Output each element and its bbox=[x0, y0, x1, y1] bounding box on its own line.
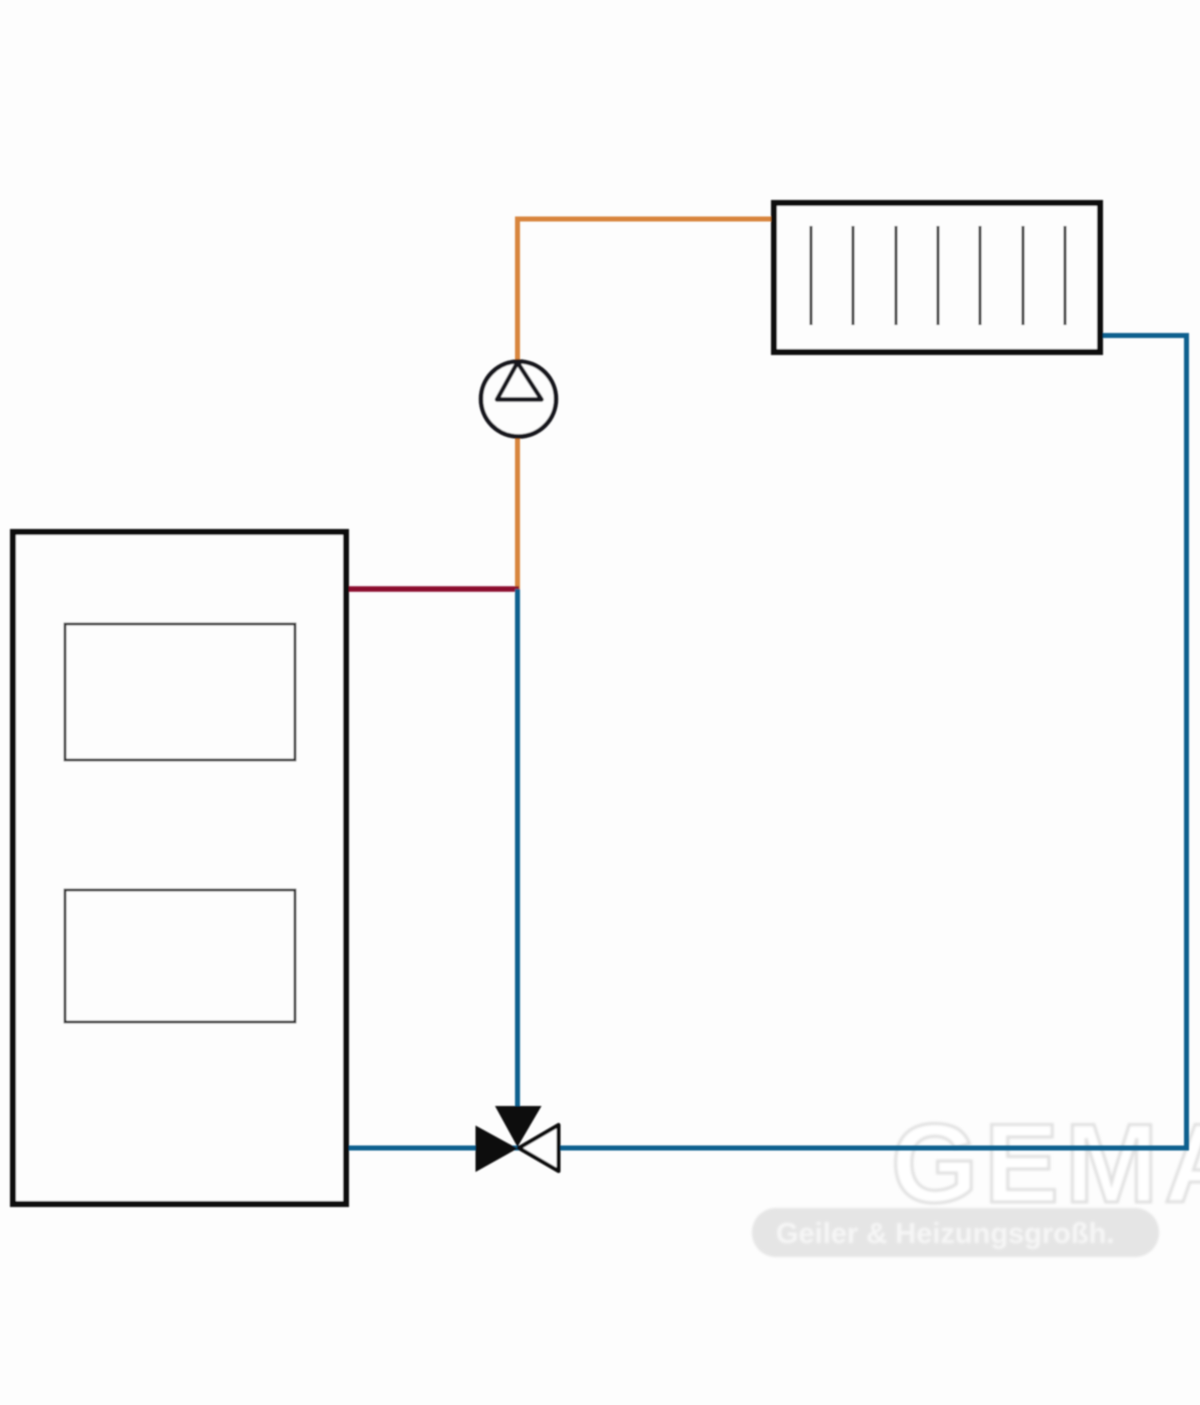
svg-text:GEMA: GEMA bbox=[891, 1101, 1200, 1226]
svg-text:Geiler & Heizungsgroßh.: Geiler & Heizungsgroßh. bbox=[776, 1218, 1114, 1250]
